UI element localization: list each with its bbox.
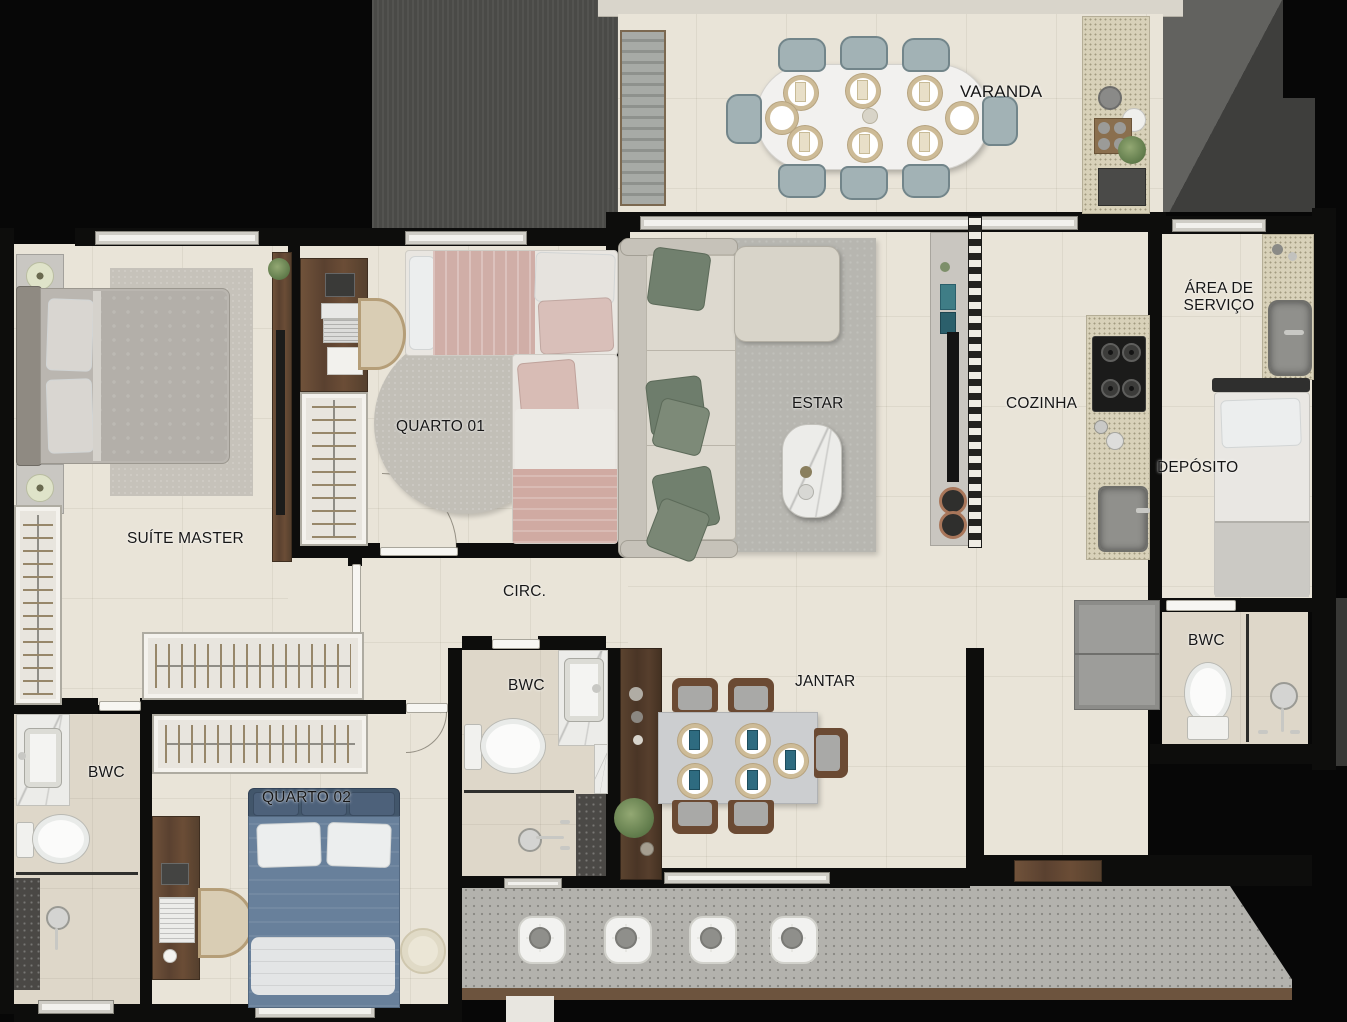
laptop-keyboard (323, 319, 359, 343)
varanda-place-setting-5 (848, 128, 882, 162)
slatted-divider (968, 216, 982, 548)
wall-right-outer (1312, 208, 1336, 770)
apartment-floor-plan: VARANDA ÁREA DE SERVIÇO ESTAR COZINHA DE… (0, 0, 1347, 1022)
napkin (919, 132, 930, 152)
bwc-servico-valve-1 (1258, 730, 1268, 734)
headboard-cushion (349, 792, 395, 816)
closet-hangers (155, 644, 351, 688)
bwc-suite-window (38, 1000, 114, 1014)
deposito-bed-blanket (1215, 521, 1309, 597)
varanda-place-setting-7 (766, 102, 798, 134)
wall-quarto02-bwcsocial (448, 650, 462, 1014)
room-label-bwc-social: BWC (508, 678, 545, 695)
laundry-faucet (1284, 330, 1304, 335)
quarto02-desk (152, 816, 200, 980)
varanda-chair-2 (840, 36, 888, 70)
bwc-social-marble-strip (594, 744, 608, 794)
desk-keyboard (159, 897, 195, 943)
quarto01-pillow (409, 256, 435, 350)
bwc-suite-shower-glass (16, 872, 138, 875)
corridor-pouf-3 (689, 916, 737, 964)
jantar-window (664, 872, 830, 884)
pouf-center (700, 927, 722, 949)
corridor-edge-wood (462, 988, 1292, 1000)
bwc-social-toilet-bowl (480, 718, 546, 774)
quarto01-duvet-rose (433, 251, 535, 355)
cup (1098, 138, 1110, 150)
pouf-center (529, 927, 551, 949)
closet-hangers (165, 725, 356, 763)
island-bottle-1 (940, 284, 956, 310)
quarto01-wardrobe (300, 392, 368, 546)
suite-door (352, 564, 361, 638)
tv-panel-island (947, 332, 959, 482)
quarto02-bed (248, 816, 400, 1008)
burner (1101, 343, 1120, 362)
tablet (325, 273, 355, 297)
corridor-pouf-1 (518, 916, 566, 964)
bwc-suite-door (99, 701, 141, 711)
kettle (1098, 86, 1122, 110)
wall-bwcsuite-quarto02 (140, 714, 152, 1004)
chair-seat (678, 686, 712, 710)
varanda-chair-4 (778, 164, 826, 198)
suite-duvet (93, 291, 227, 461)
wall-jantar-kitchen (966, 648, 984, 858)
room-label-circ: CIRC. (503, 584, 546, 601)
refrigerator (1074, 600, 1160, 710)
common-corridor-floor (462, 886, 1292, 998)
cup (1098, 122, 1110, 134)
sofa-back (618, 240, 648, 558)
bwc-suite-shower-niche (14, 878, 40, 990)
room-label-jantar: JANTAR (795, 674, 855, 691)
varanda-place-setting-6 (908, 126, 942, 160)
quarto01-door (380, 547, 458, 556)
laundry-item-2 (1288, 252, 1297, 261)
room-label-quarto02: QUARTO 02 (262, 790, 351, 807)
jantar-place-setting-4 (736, 764, 770, 798)
kitchen-faucet-knob (1094, 420, 1108, 434)
room-label-estar: ESTAR (792, 396, 844, 413)
entry-door (1014, 860, 1102, 882)
bwc-servico-floor (1162, 612, 1308, 744)
napkin-blue (785, 750, 796, 770)
bwc-social-shower-arm (536, 836, 564, 839)
chair-seat (816, 735, 840, 771)
sideboard-decor-1 (629, 687, 643, 701)
chair-seat (734, 686, 768, 710)
wall-bwcservico-bottom (1150, 744, 1320, 764)
jantar-chair-5 (814, 728, 848, 778)
desk-screen (161, 863, 189, 885)
bwc-social-shower-head (518, 828, 542, 852)
suite-closet (142, 632, 364, 700)
quarto02-pillow-2 (326, 822, 391, 868)
varanda-place-setting-3 (908, 76, 942, 110)
bwc-social-door (492, 639, 540, 649)
jantar-ch air-2 (728, 678, 774, 712)
varanda-place-setting-2 (846, 74, 880, 108)
sideboard-decor-3 (633, 735, 643, 745)
varanda-bench (620, 30, 666, 206)
bwc-servico-toilet-bowl (1184, 662, 1232, 724)
napkin (799, 132, 810, 152)
bwc-suite-shower-head (46, 906, 70, 930)
cooktop (1092, 336, 1146, 412)
quarto02-blanket-fold (251, 937, 395, 995)
bwc-social-niche (576, 794, 606, 876)
bwc-servico-shower-glass (1246, 614, 1249, 742)
circ-floor-ext (362, 558, 448, 714)
fridge-door-split (1075, 653, 1159, 655)
suite-panel-plant (268, 258, 290, 280)
quarto01-blanket-rose (513, 469, 617, 543)
napkin (919, 82, 930, 102)
sofa-pillow-green-1 (646, 246, 712, 312)
bwc-servico-door (1166, 600, 1236, 611)
chair-seat (734, 802, 768, 826)
jantar-chair-3 (672, 800, 718, 834)
quarto02-closet (152, 714, 368, 774)
wall-bwcsocial-top-a (462, 636, 492, 650)
varanda-chair-5 (840, 166, 888, 200)
bwc-servico-toilet-tank (1187, 716, 1229, 740)
jantar-chair-1 (672, 678, 718, 712)
sideboard-decor-2 (631, 711, 643, 723)
suite-wardrobe-tall (14, 505, 62, 705)
suite-tv (276, 330, 285, 515)
island-stool-2 (939, 511, 967, 539)
bwc-suite-faucet (18, 752, 26, 760)
room-label-bwc-suite: BWC (88, 765, 125, 782)
quarto01-bed-top (405, 250, 618, 356)
bwc-suite-sink (24, 728, 62, 788)
varanda-centerpiece (862, 108, 878, 124)
exterior-corner-top-right (1283, 0, 1347, 98)
jantar-place-setting-5 (774, 744, 808, 778)
wall-quarto01-bottom-b (456, 543, 606, 558)
napkin-blue (747, 730, 758, 750)
bwc-social-shower-glass (464, 790, 574, 793)
bwc-social-valve-1 (560, 820, 570, 824)
deposito-bed-headboard (1212, 378, 1310, 392)
quarto01-corner-cushion-2 (538, 297, 615, 355)
varanda-chair-1 (778, 38, 826, 72)
bwc-servico-shower-head (1270, 682, 1298, 710)
coffee-table-decor-1 (800, 466, 812, 478)
napkin-blue (747, 770, 758, 790)
laundry-item-1 (1272, 244, 1283, 255)
suite-sheet-fold (93, 291, 101, 461)
chair-seat (678, 802, 712, 826)
jantar-chair-4 (728, 800, 774, 834)
corridor-pouf-2 (604, 916, 652, 964)
bwc-servico-shower-pipe (1281, 708, 1284, 732)
pouf-center (781, 927, 803, 949)
burner (1101, 379, 1120, 398)
quarto01-corner-cushion-1 (534, 252, 616, 305)
kitchen-sink (1098, 486, 1148, 552)
suite-pillow-2 (46, 378, 95, 454)
napkin-blue (689, 770, 700, 790)
sofa-chaise (734, 246, 840, 342)
island-plant (940, 262, 950, 272)
quarto01-duvet-white (515, 409, 615, 471)
room-label-bwc-servico: BWC (1188, 633, 1225, 650)
wall-suite-bottom-b (140, 698, 348, 714)
desk-mug (163, 949, 177, 963)
suite-bed-headboard (16, 286, 42, 466)
varanda-chair-8 (982, 96, 1018, 146)
room-label-area-servico: ÁREA DE SERVIÇO (1176, 280, 1262, 314)
servico-sliding-door (1172, 219, 1266, 232)
bwc-suite-toilet-bowl (32, 814, 90, 864)
napkin-blue (689, 730, 700, 750)
room-label-cozinha: COZINHA (1006, 396, 1077, 413)
napkin (859, 134, 870, 154)
wall-bwcsocial-top-b (538, 636, 606, 650)
suite-pillow-1 (46, 298, 94, 372)
bwc-suite-shower-pipe (55, 928, 58, 950)
coffee-machine (1098, 168, 1146, 206)
quarto02-pillow-1 (256, 822, 321, 868)
wardrobe-hangers (312, 400, 356, 538)
exterior-shade-top-left (372, 0, 618, 230)
varanda-sliding-door (640, 216, 1078, 230)
wall-left-outer (0, 228, 14, 1014)
room-label-varanda: VARANDA (960, 83, 1042, 101)
quarto01-window (405, 231, 527, 245)
wall-kitchen-right (1148, 232, 1162, 612)
laundry-sink (1268, 300, 1312, 376)
varanda-chair-7 (726, 94, 762, 144)
bwc-servico-valve-2 (1290, 730, 1300, 734)
coffee-table-decor-2 (798, 484, 814, 500)
varanda-place-setting-8 (946, 102, 978, 134)
deposito-bed-pillow (1220, 398, 1302, 449)
bwc-social-valve-2 (560, 846, 570, 850)
cup (1114, 122, 1126, 134)
room-label-deposito: DEPÓSITO (1157, 460, 1238, 477)
varanda-chair-3 (902, 38, 950, 72)
jantar-place-setting-2 (736, 724, 770, 758)
jantar-plant (614, 798, 654, 838)
deposito-bed (1214, 392, 1310, 597)
varanda-chair-6 (902, 164, 950, 198)
bwc-social-faucet (592, 684, 601, 693)
varanda-place-setting-4 (788, 126, 822, 160)
corridor-pouf-4 (770, 916, 818, 964)
wardrobe-hangers (23, 515, 53, 695)
bwc-social-window (504, 878, 562, 889)
suite-nightstand-plant-2 (26, 474, 54, 502)
suite-bed (40, 288, 230, 464)
room-label-quarto01: QUARTO 01 (396, 419, 485, 436)
corridor-pillar (506, 996, 554, 1022)
burner (1122, 343, 1141, 362)
kitchen-bowl (1106, 432, 1124, 450)
room-label-suite-master: SUÍTE MASTER (127, 531, 244, 548)
napkin (857, 80, 868, 100)
jantar-place-setting-1 (678, 724, 712, 758)
quarto01-bed-right (512, 354, 618, 544)
laptop-screen (321, 303, 361, 319)
burner (1122, 379, 1141, 398)
kitchen-sink-faucet (1136, 508, 1150, 513)
quarto02-pouf (400, 928, 446, 974)
jantar-plant-pot (640, 842, 654, 856)
island-bottle-2 (940, 312, 956, 334)
counter-plant (1118, 136, 1146, 164)
jantar-place-setting-3 (678, 764, 712, 798)
coffee-table (782, 424, 842, 518)
pouf-center (615, 927, 637, 949)
napkin (795, 82, 806, 102)
wall-circ-quarto02 (348, 700, 406, 714)
suite-window (95, 231, 259, 245)
